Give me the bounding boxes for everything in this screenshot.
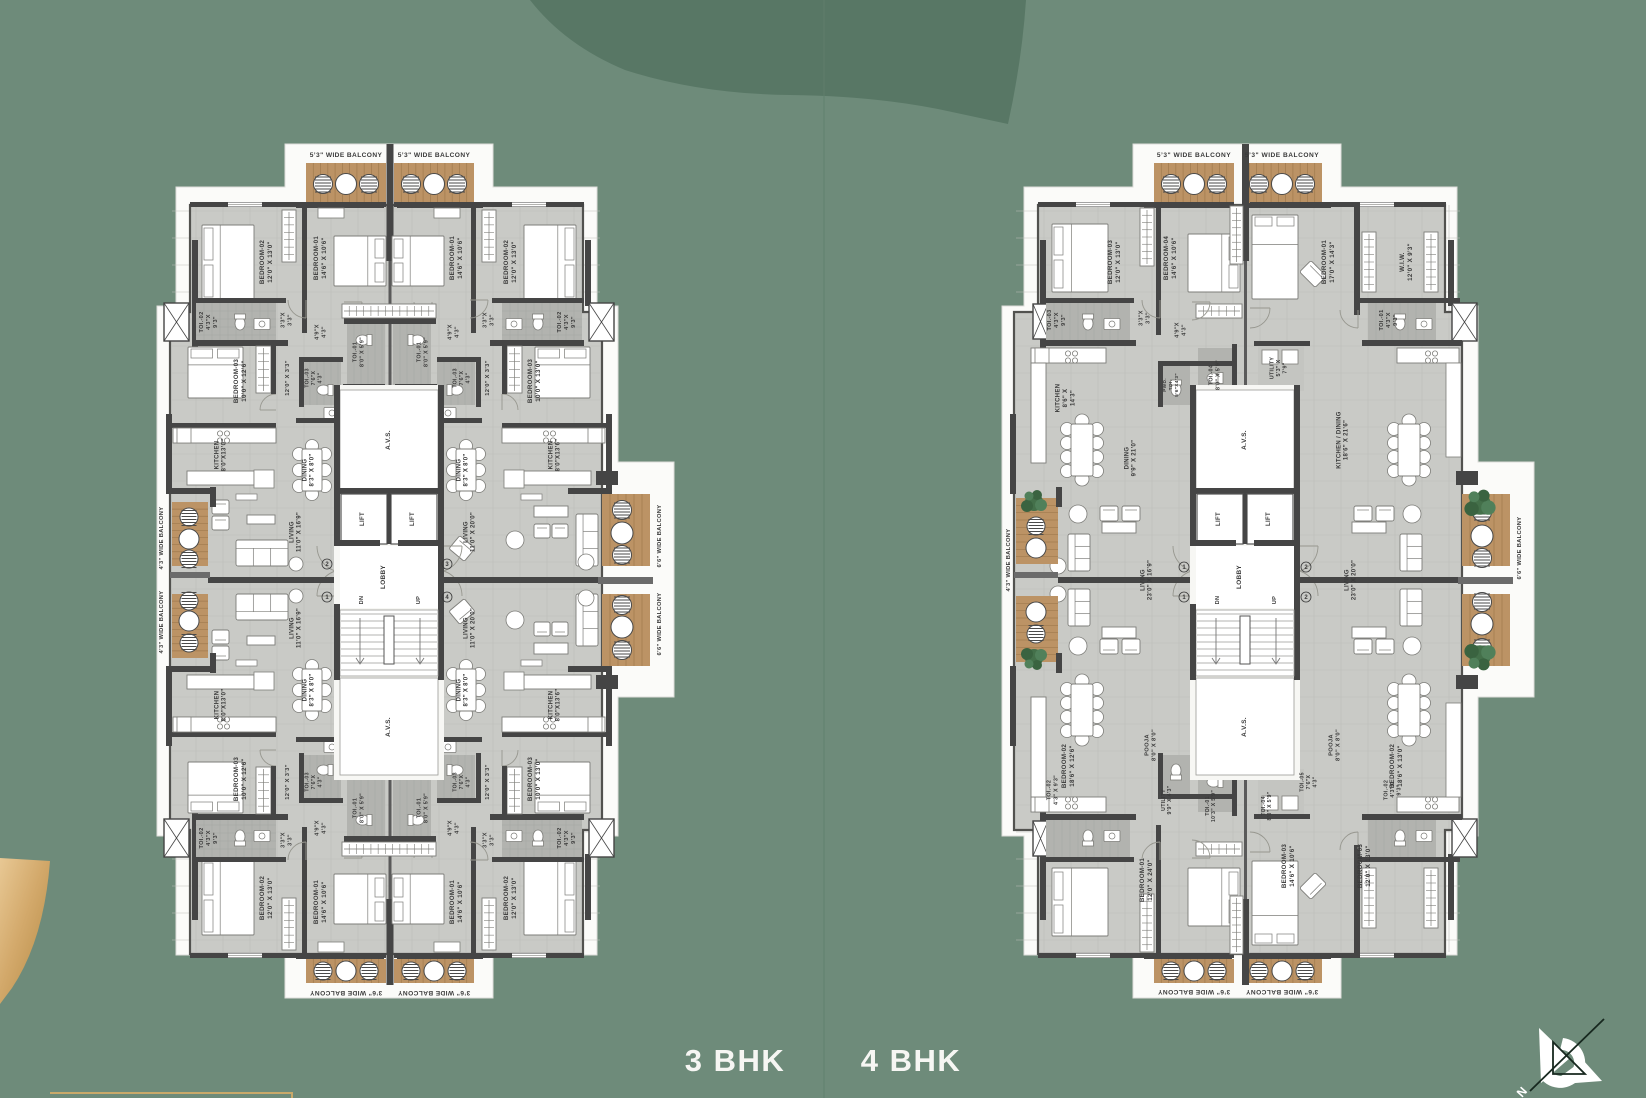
- svg-text:18’6" X 12’6": 18’6" X 12’6": [1069, 745, 1076, 786]
- svg-text:KITCHEN / DINING: KITCHEN / DINING: [1336, 411, 1342, 468]
- svg-text:LIVING: LIVING: [289, 617, 295, 639]
- svg-text:11’0" X 20’0": 11’0" X 20’0": [471, 608, 477, 648]
- svg-text:TOI.: TOI.: [1168, 380, 1174, 390]
- svg-text:BEDROOM-01: BEDROOM-01: [449, 880, 456, 925]
- svg-text:BEDROOM-03: BEDROOM-03: [1107, 240, 1114, 285]
- svg-text:TOI.-01: TOI.-01: [417, 798, 423, 818]
- svg-text:4’9"X: 4’9"X: [448, 820, 454, 836]
- svg-text:BEDROOM-04: BEDROOM-04: [1163, 236, 1170, 281]
- svg-text:7’6"X: 7’6"X: [311, 774, 317, 789]
- svg-text:W.I.W.: W.I.W.: [1399, 252, 1406, 272]
- svg-text:14’6" X 10’6": 14’6" X 10’6": [457, 881, 464, 922]
- svg-text:7’6"X: 7’6"X: [1306, 774, 1312, 789]
- svg-text:LIFT: LIFT: [360, 512, 366, 526]
- svg-text:8’0" X 8’0": 8’0" X 8’0": [1336, 729, 1342, 761]
- svg-text:POOJA: POOJA: [1328, 734, 1334, 756]
- svg-text:5’3" X: 5’3" X: [1276, 359, 1282, 376]
- svg-text:6’6" WIDE BALCONY: 6’6" WIDE BALCONY: [657, 593, 663, 656]
- svg-text:4’3": 4’3": [1312, 776, 1318, 787]
- svg-text:DINING: DINING: [456, 459, 462, 482]
- svg-text:4’3" WIDE BALCONY: 4’3" WIDE BALCONY: [159, 507, 165, 570]
- svg-text:3’3"X: 3’3"X: [281, 312, 287, 328]
- svg-text:23’0" X 20’0": 23’0" X 20’0": [1352, 560, 1358, 600]
- svg-text:LIFT: LIFT: [410, 512, 416, 526]
- svg-text:3’3"X: 3’3"X: [281, 832, 287, 848]
- svg-text:14’6" X 10’6": 14’6" X 10’6": [321, 881, 328, 922]
- svg-text:TOI.-03: TOI.-03: [305, 772, 311, 792]
- svg-text:TOI.-02: TOI.-02: [1047, 780, 1053, 800]
- svg-text:UTILITY: UTILITY: [1269, 357, 1275, 380]
- svg-text:9’3": 9’3": [1393, 314, 1399, 326]
- svg-text:TOI.-02: TOI.-02: [557, 828, 563, 849]
- svg-text:4’3" X 9’3": 4’3" X 9’3": [1053, 775, 1059, 805]
- svg-text:3’3": 3’3": [288, 834, 294, 846]
- svg-text:BEDROOM-03: BEDROOM-03: [1357, 844, 1364, 889]
- svg-text:TOI.-02: TOI.-02: [199, 828, 205, 849]
- svg-text:12’0" X 3’3": 12’0" X 3’3": [485, 764, 491, 800]
- svg-text:12’0" X 9’3": 12’0" X 9’3": [1407, 243, 1414, 281]
- svg-text:8’0" X 5’9": 8’0" X 5’9": [1267, 791, 1273, 820]
- svg-text:LIFT: LIFT: [1216, 512, 1222, 526]
- svg-text:A.V.S.: A.V.S.: [385, 717, 392, 737]
- svg-text:BEDROOM-03: BEDROOM-03: [233, 757, 240, 802]
- svg-text:10’0" X 13’0": 10’0" X 13’0": [535, 360, 542, 401]
- svg-text:4’3"X: 4’3"X: [564, 314, 570, 330]
- svg-text:10’3" X 5’9": 10’3" X 5’9": [1211, 790, 1217, 822]
- svg-text:12’0" X 13’0": 12’0" X 13’0": [267, 877, 274, 918]
- svg-text:8’3" X 8’0": 8’3" X 8’0": [310, 673, 316, 706]
- svg-text:LIVING: LIVING: [1140, 569, 1146, 591]
- svg-text:12’0" X 13’0": 12’0" X 13’0": [511, 877, 518, 918]
- svg-text:UP: UP: [1272, 596, 1278, 604]
- svg-text:LIVING: LIVING: [463, 617, 469, 639]
- svg-text:BEDROOM-02: BEDROOM-02: [503, 240, 510, 285]
- svg-text:9’3": 9’3": [1397, 784, 1403, 795]
- svg-text:9’3": 9’3": [571, 832, 577, 844]
- svg-text:BEDROOM-01: BEDROOM-01: [449, 236, 456, 281]
- svg-text:9’9" X 4’3": 9’9" X 4’3": [1167, 785, 1173, 814]
- svg-text:8’3" X 8’0": 8’3" X 8’0": [310, 453, 316, 486]
- svg-text:14’6" X 10’6": 14’6" X 10’6": [1289, 845, 1296, 886]
- svg-text:4’9"X: 4’9"X: [315, 820, 321, 836]
- svg-text:6’6" WIDE BALCONY: 6’6" WIDE BALCONY: [1517, 517, 1523, 580]
- svg-text:4’3"X: 4’3"X: [564, 830, 570, 846]
- svg-text:KITCHEN: KITCHEN: [214, 691, 220, 720]
- svg-text:12’0" X 3’3": 12’0" X 3’3": [285, 360, 291, 396]
- svg-text:TOI.-04: TOI.-04: [1209, 365, 1215, 385]
- svg-text:11’0" X 20’0": 11’0" X 20’0": [471, 512, 477, 552]
- svg-text:4’3"X: 4’3"X: [1386, 312, 1392, 328]
- svg-text:7’6"X: 7’6"X: [459, 774, 465, 789]
- svg-text:BEDROOM-03: BEDROOM-03: [527, 359, 534, 404]
- svg-text:4’3": 4’3": [455, 822, 461, 834]
- svg-text:DN: DN: [1215, 596, 1221, 605]
- svg-text:KITCHEN: KITCHEN: [548, 441, 554, 470]
- svg-text:7’6"X: 7’6"X: [459, 370, 465, 385]
- svg-text:LIVING: LIVING: [463, 521, 469, 543]
- svg-text:3’6" WIDE BALCONY: 3’6" WIDE BALCONY: [1158, 988, 1231, 995]
- svg-text:TOI.-03: TOI.-03: [1047, 310, 1053, 331]
- svg-text:9’3": 9’3": [213, 316, 219, 328]
- svg-text:8’3" X 8’0": 8’3" X 8’0": [464, 453, 470, 486]
- svg-text:7’6"X: 7’6"X: [311, 370, 317, 385]
- svg-text:LIFT: LIFT: [1266, 512, 1272, 526]
- svg-text:18’6" X 21’6": 18’6" X 21’6": [1344, 420, 1350, 460]
- svg-text:TOI.-03: TOI.-03: [453, 368, 459, 388]
- svg-text:11’0" X 16’9": 11’0" X 16’9": [297, 608, 303, 648]
- svg-text:3’3": 3’3": [1146, 312, 1152, 324]
- svg-text:4’3" WIDE BALCONY: 4’3" WIDE BALCONY: [1006, 529, 1012, 592]
- svg-text:KITCHEN: KITCHEN: [1056, 384, 1062, 413]
- svg-text:8’0"X13’0": 8’0"X13’0": [222, 439, 228, 472]
- svg-text:3 BHK: 3 BHK: [685, 1043, 786, 1078]
- svg-text:3’3"X: 3’3"X: [1139, 310, 1145, 326]
- svg-text:9’3": 9’3": [213, 832, 219, 844]
- svg-text:DINING: DINING: [1124, 447, 1130, 470]
- svg-text:23’0" X 16’9": 23’0" X 16’9": [1148, 560, 1154, 600]
- svg-text:4’9"X: 4’9"X: [315, 324, 321, 340]
- svg-text:3’3"X: 3’3"X: [483, 312, 489, 328]
- svg-text:12’0" X 24’0": 12’0" X 24’0": [1147, 859, 1154, 900]
- svg-text:LOBBY: LOBBY: [1236, 565, 1243, 589]
- svg-text:5’3" WIDE BALCONY: 5’3" WIDE BALCONY: [398, 152, 471, 159]
- svg-text:14’6" X 10’6": 14’6" X 10’6": [457, 237, 464, 278]
- svg-text:BEDROOM-01: BEDROOM-01: [1321, 240, 1328, 285]
- svg-text:14’6" X 10’6": 14’6" X 10’6": [1171, 237, 1178, 278]
- svg-text:9’3": 9’3": [571, 316, 577, 328]
- svg-text:7’9": 7’9": [1283, 362, 1289, 373]
- svg-text:TOI.-01: TOI.-01: [417, 342, 423, 362]
- svg-text:LIVING: LIVING: [1344, 569, 1350, 591]
- svg-text:9’9" X 21’0": 9’9" X 21’0": [1132, 440, 1138, 477]
- svg-text:BEDROOM-01: BEDROOM-01: [313, 236, 320, 281]
- svg-text:8’0" X 5’9": 8’0" X 5’9": [423, 793, 429, 823]
- svg-text:A.V.S.: A.V.S.: [1241, 717, 1248, 737]
- svg-text:4’3"X: 4’3"X: [1054, 312, 1060, 328]
- svg-text:4’3": 4’3": [455, 326, 461, 338]
- svg-text:10’0" X 12’6": 10’0" X 12’6": [241, 758, 248, 799]
- svg-text:BEDROOM-01: BEDROOM-01: [1139, 858, 1146, 903]
- svg-text:8’0"X13’6": 8’0"X13’6": [556, 439, 562, 472]
- svg-text:4’3": 4’3": [317, 372, 323, 383]
- svg-text:14’6" X 10’6": 14’6" X 10’6": [321, 237, 328, 278]
- svg-text:LOBBY: LOBBY: [380, 565, 387, 589]
- svg-text:11’0" X 16’9": 11’0" X 16’9": [297, 512, 303, 552]
- svg-text:3’3"X: 3’3"X: [483, 832, 489, 848]
- svg-text:4’3": 4’3": [322, 326, 328, 338]
- svg-text:4’9"X: 4’9"X: [448, 324, 454, 340]
- svg-text:18’6" X 13’0": 18’6" X 13’0": [1397, 745, 1404, 786]
- svg-text:4’3"X: 4’3"X: [1390, 782, 1396, 797]
- svg-text:8’0" X 5’9": 8’0" X 5’9": [359, 793, 365, 823]
- svg-text:4’3": 4’3": [465, 372, 471, 383]
- svg-text:TOI.-02: TOI.-02: [1383, 780, 1389, 800]
- svg-text:UTILITY: UTILITY: [1161, 789, 1167, 811]
- svg-text:8’0"X13’0": 8’0"X13’0": [222, 689, 228, 722]
- svg-text:LIVING: LIVING: [289, 521, 295, 543]
- svg-text:DN: DN: [359, 596, 365, 605]
- svg-text:DINING: DINING: [456, 679, 462, 702]
- svg-text:TOI.-03: TOI.-03: [453, 772, 459, 792]
- svg-text:3’6" WIDE BALCONY: 3’6" WIDE BALCONY: [1246, 988, 1319, 995]
- svg-text:8’0" X 5’9": 8’0" X 5’9": [359, 337, 365, 367]
- svg-text:TOI.-03: TOI.-03: [305, 368, 311, 388]
- svg-text:DINING: DINING: [302, 459, 308, 482]
- svg-text:12’0" X 13’0": 12’0" X 13’0": [1115, 241, 1122, 282]
- svg-text:3’6" WIDE BALCONY: 3’6" WIDE BALCONY: [398, 989, 471, 996]
- svg-text:4’3": 4’3": [317, 776, 323, 787]
- svg-text:BEDROOM-02: BEDROOM-02: [1389, 744, 1396, 789]
- svg-text:12’0" X 3’3": 12’0" X 3’3": [485, 360, 491, 396]
- svg-text:8’0" X 5’9": 8’0" X 5’9": [423, 337, 429, 367]
- svg-text:6’6" WIDE BALCONY: 6’6" WIDE BALCONY: [657, 505, 663, 568]
- svg-text:UP: UP: [416, 596, 422, 604]
- svg-text:PWD.: PWD.: [1162, 378, 1168, 392]
- svg-text:KITCHEN: KITCHEN: [214, 441, 220, 470]
- svg-text:DINING: DINING: [302, 679, 308, 702]
- svg-text:10’0" X 12’6": 10’0" X 12’6": [241, 360, 248, 401]
- svg-text:8’0" X 5’9": 8’0" X 5’9": [1215, 360, 1221, 390]
- svg-text:TOI.-04: TOI.-04: [1261, 796, 1267, 816]
- svg-text:BEDROOM-02: BEDROOM-02: [1061, 744, 1068, 789]
- svg-text:12’0" X 13’0": 12’0" X 13’0": [1365, 845, 1372, 886]
- svg-text:TOI.-01: TOI.-01: [353, 798, 359, 818]
- svg-text:A.V.S.: A.V.S.: [385, 430, 392, 450]
- svg-text:5’3" WIDE BALCONY: 5’3" WIDE BALCONY: [1245, 152, 1319, 159]
- svg-text:14’3": 14’3": [1070, 390, 1076, 406]
- svg-text:8’6" X: 8’6" X: [1063, 389, 1069, 408]
- svg-text:TOI.-02: TOI.-02: [557, 312, 563, 333]
- svg-text:3’3": 3’3": [490, 314, 496, 326]
- svg-text:5’6"X4’3": 5’6"X4’3": [1174, 373, 1180, 397]
- svg-text:BEDROOM-02: BEDROOM-02: [503, 876, 510, 921]
- svg-text:17’0" X 14’3": 17’0" X 14’3": [1329, 241, 1336, 282]
- svg-text:KITCHEN: KITCHEN: [548, 691, 554, 720]
- svg-text:BEDROOM-03: BEDROOM-03: [233, 359, 240, 404]
- svg-text:4 BHK: 4 BHK: [861, 1043, 962, 1078]
- svg-text:TOI.-02: TOI.-02: [199, 312, 205, 333]
- svg-text:8’3" X 8’0": 8’3" X 8’0": [464, 673, 470, 706]
- svg-text:BEDROOM-02: BEDROOM-02: [259, 240, 266, 285]
- svg-text:8’0" X 8’0": 8’0" X 8’0": [1152, 729, 1158, 761]
- svg-text:4’3"X: 4’3"X: [206, 830, 212, 846]
- svg-text:BEDROOM-03: BEDROOM-03: [527, 757, 534, 802]
- svg-text:4’3"X: 4’3"X: [206, 314, 212, 330]
- svg-text:POOJA: POOJA: [1144, 734, 1150, 756]
- svg-text:10’0" X 13’0": 10’0" X 13’0": [535, 758, 542, 799]
- svg-text:12’0" X 13’0": 12’0" X 13’0": [511, 241, 518, 282]
- svg-text:TOI.-01: TOI.-01: [353, 342, 359, 362]
- svg-text:TOI.-05: TOI.-05: [1300, 772, 1306, 792]
- svg-text:BEDROOM-01: BEDROOM-01: [313, 880, 320, 925]
- svg-text:5’3" WIDE BALCONY: 5’3" WIDE BALCONY: [1157, 152, 1231, 159]
- svg-text:A.V.S.: A.V.S.: [1241, 430, 1248, 450]
- svg-text:3’3": 3’3": [288, 314, 294, 326]
- svg-text:4’9"X: 4’9"X: [1175, 322, 1181, 338]
- svg-text:5’3" WIDE BALCONY: 5’3" WIDE BALCONY: [310, 152, 383, 159]
- svg-text:BEDROOM-02: BEDROOM-02: [259, 876, 266, 921]
- svg-text:3’3": 3’3": [490, 834, 496, 846]
- svg-text:4’3": 4’3": [322, 822, 328, 834]
- svg-text:8’0"X13’6": 8’0"X13’6": [556, 689, 562, 722]
- svg-text:4’3": 4’3": [465, 776, 471, 787]
- svg-text:3’6" WIDE BALCONY: 3’6" WIDE BALCONY: [310, 989, 383, 996]
- svg-text:TOI.-01: TOI.-01: [1379, 310, 1385, 331]
- svg-text:12’0" X 13’0": 12’0" X 13’0": [267, 241, 274, 282]
- svg-text:4’3": 4’3": [1182, 324, 1188, 336]
- svg-text:BEDROOM-03: BEDROOM-03: [1281, 844, 1288, 889]
- svg-text:4’3" WIDE BALCONY: 4’3" WIDE BALCONY: [159, 591, 165, 654]
- svg-text:9’3": 9’3": [1061, 314, 1067, 326]
- svg-text:12’0" X 3’3": 12’0" X 3’3": [285, 764, 291, 800]
- svg-text:TOI.-01: TOI.-01: [1205, 796, 1211, 816]
